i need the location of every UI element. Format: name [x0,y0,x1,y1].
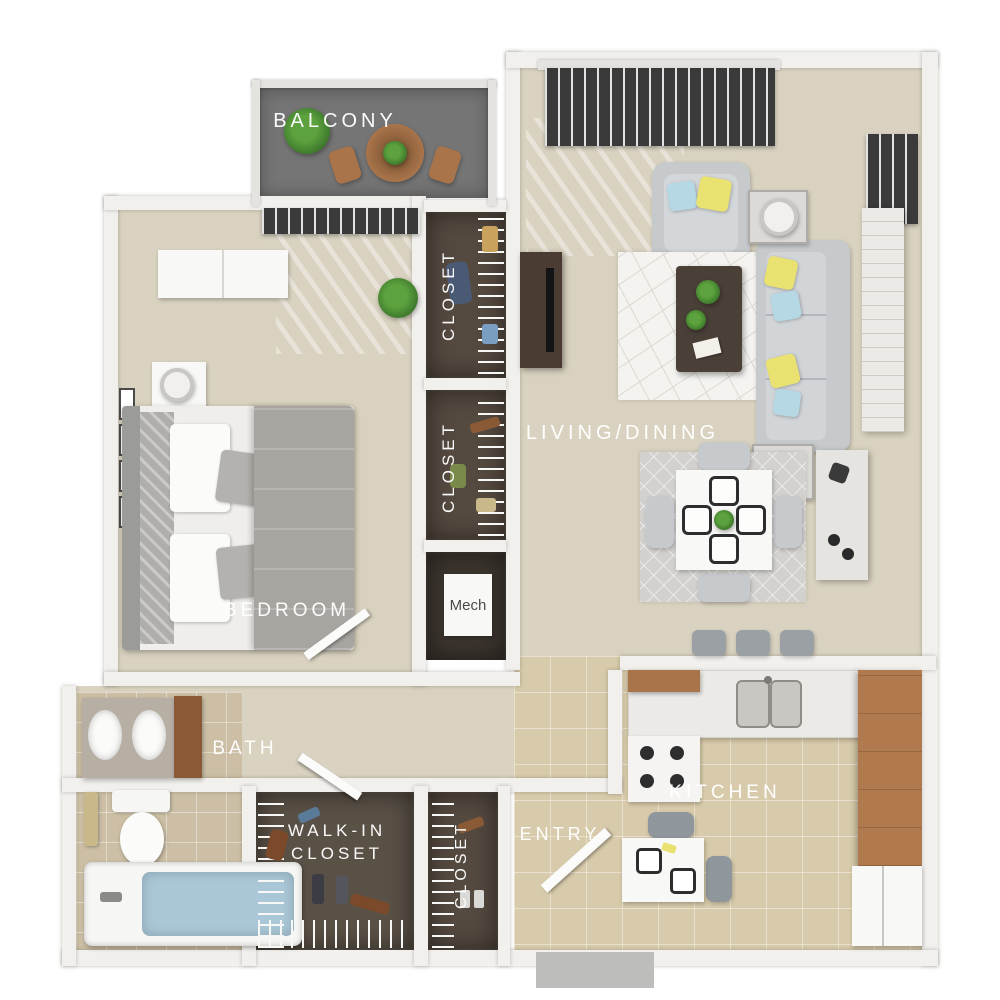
vanity-sink [132,710,166,760]
bath-label: BATH [195,736,295,762]
balcony-railing [252,80,496,88]
potted-plant [378,278,418,318]
coffee-table [676,266,742,372]
bar-stool [692,630,726,656]
wall [104,196,118,686]
sliding-door-blinds [262,208,420,234]
entry-label: ENTRY [506,822,614,846]
accent-pillow [695,175,732,212]
kitchen-sink [736,680,802,728]
wall [414,786,428,966]
accent-pillow [666,180,698,212]
kitchen-label: KITCHEN [643,780,807,806]
tub-faucet [100,892,122,902]
wall [104,672,520,686]
entry-stoop [536,952,654,988]
bar-stool [736,630,770,656]
wall [424,540,506,552]
patio-table-plant [383,141,407,165]
dining-chair [698,574,750,602]
tv-screen [546,268,554,352]
mech-label: Mech [444,596,492,616]
accent-pillow [770,290,802,322]
wall [498,786,510,966]
towel [84,792,98,846]
wall [922,52,938,966]
dresser [158,250,288,298]
vanity-sink [88,710,122,760]
sideboard [816,450,868,580]
sliding-door-blinds [545,68,775,146]
console-bench [862,208,904,432]
accent-pillow [763,255,799,291]
wall [424,378,506,390]
dining-chair [646,496,674,548]
kitchen-cabinet-run [858,670,922,866]
closet-lower-label: CLOSET [439,387,459,547]
faucet [764,676,772,684]
magazine [692,337,721,359]
accent-pillow [772,388,801,417]
toilet [112,790,170,870]
bedroom-label: BEDROOM [197,598,377,624]
wall [62,686,76,966]
wall [412,196,426,686]
wire-shelving [432,794,454,948]
balcony-label: BALCONY [255,108,415,135]
wall [620,656,936,670]
upper-cabinet [628,670,700,692]
table-lamp [760,198,798,236]
wall [608,670,622,794]
balcony-railing [252,80,260,206]
table-lamp [160,368,194,402]
dining-table [676,470,772,570]
dining-chair [774,496,802,548]
entry-closet-label: CLOSET [453,805,473,925]
walk-in-closet-label: WALK-IN CLOSET [268,820,406,866]
floor-plan: BALCONY CLOSET CLOSET LIVING/DINING BEDR… [0,0,1000,1000]
living-dining-label: LIVING/DINING [525,420,720,447]
refrigerator [852,866,922,946]
kitchen-chair [706,856,732,902]
wall [506,52,520,670]
wire-shelving [258,920,412,948]
bar-stool [780,630,814,656]
kitchen-chair [648,812,694,838]
headboard [122,406,140,650]
kitchen-table [622,838,704,902]
balcony-railing [488,80,496,206]
closet-upper-label: CLOSET [439,215,459,375]
tv-stand [520,252,562,368]
